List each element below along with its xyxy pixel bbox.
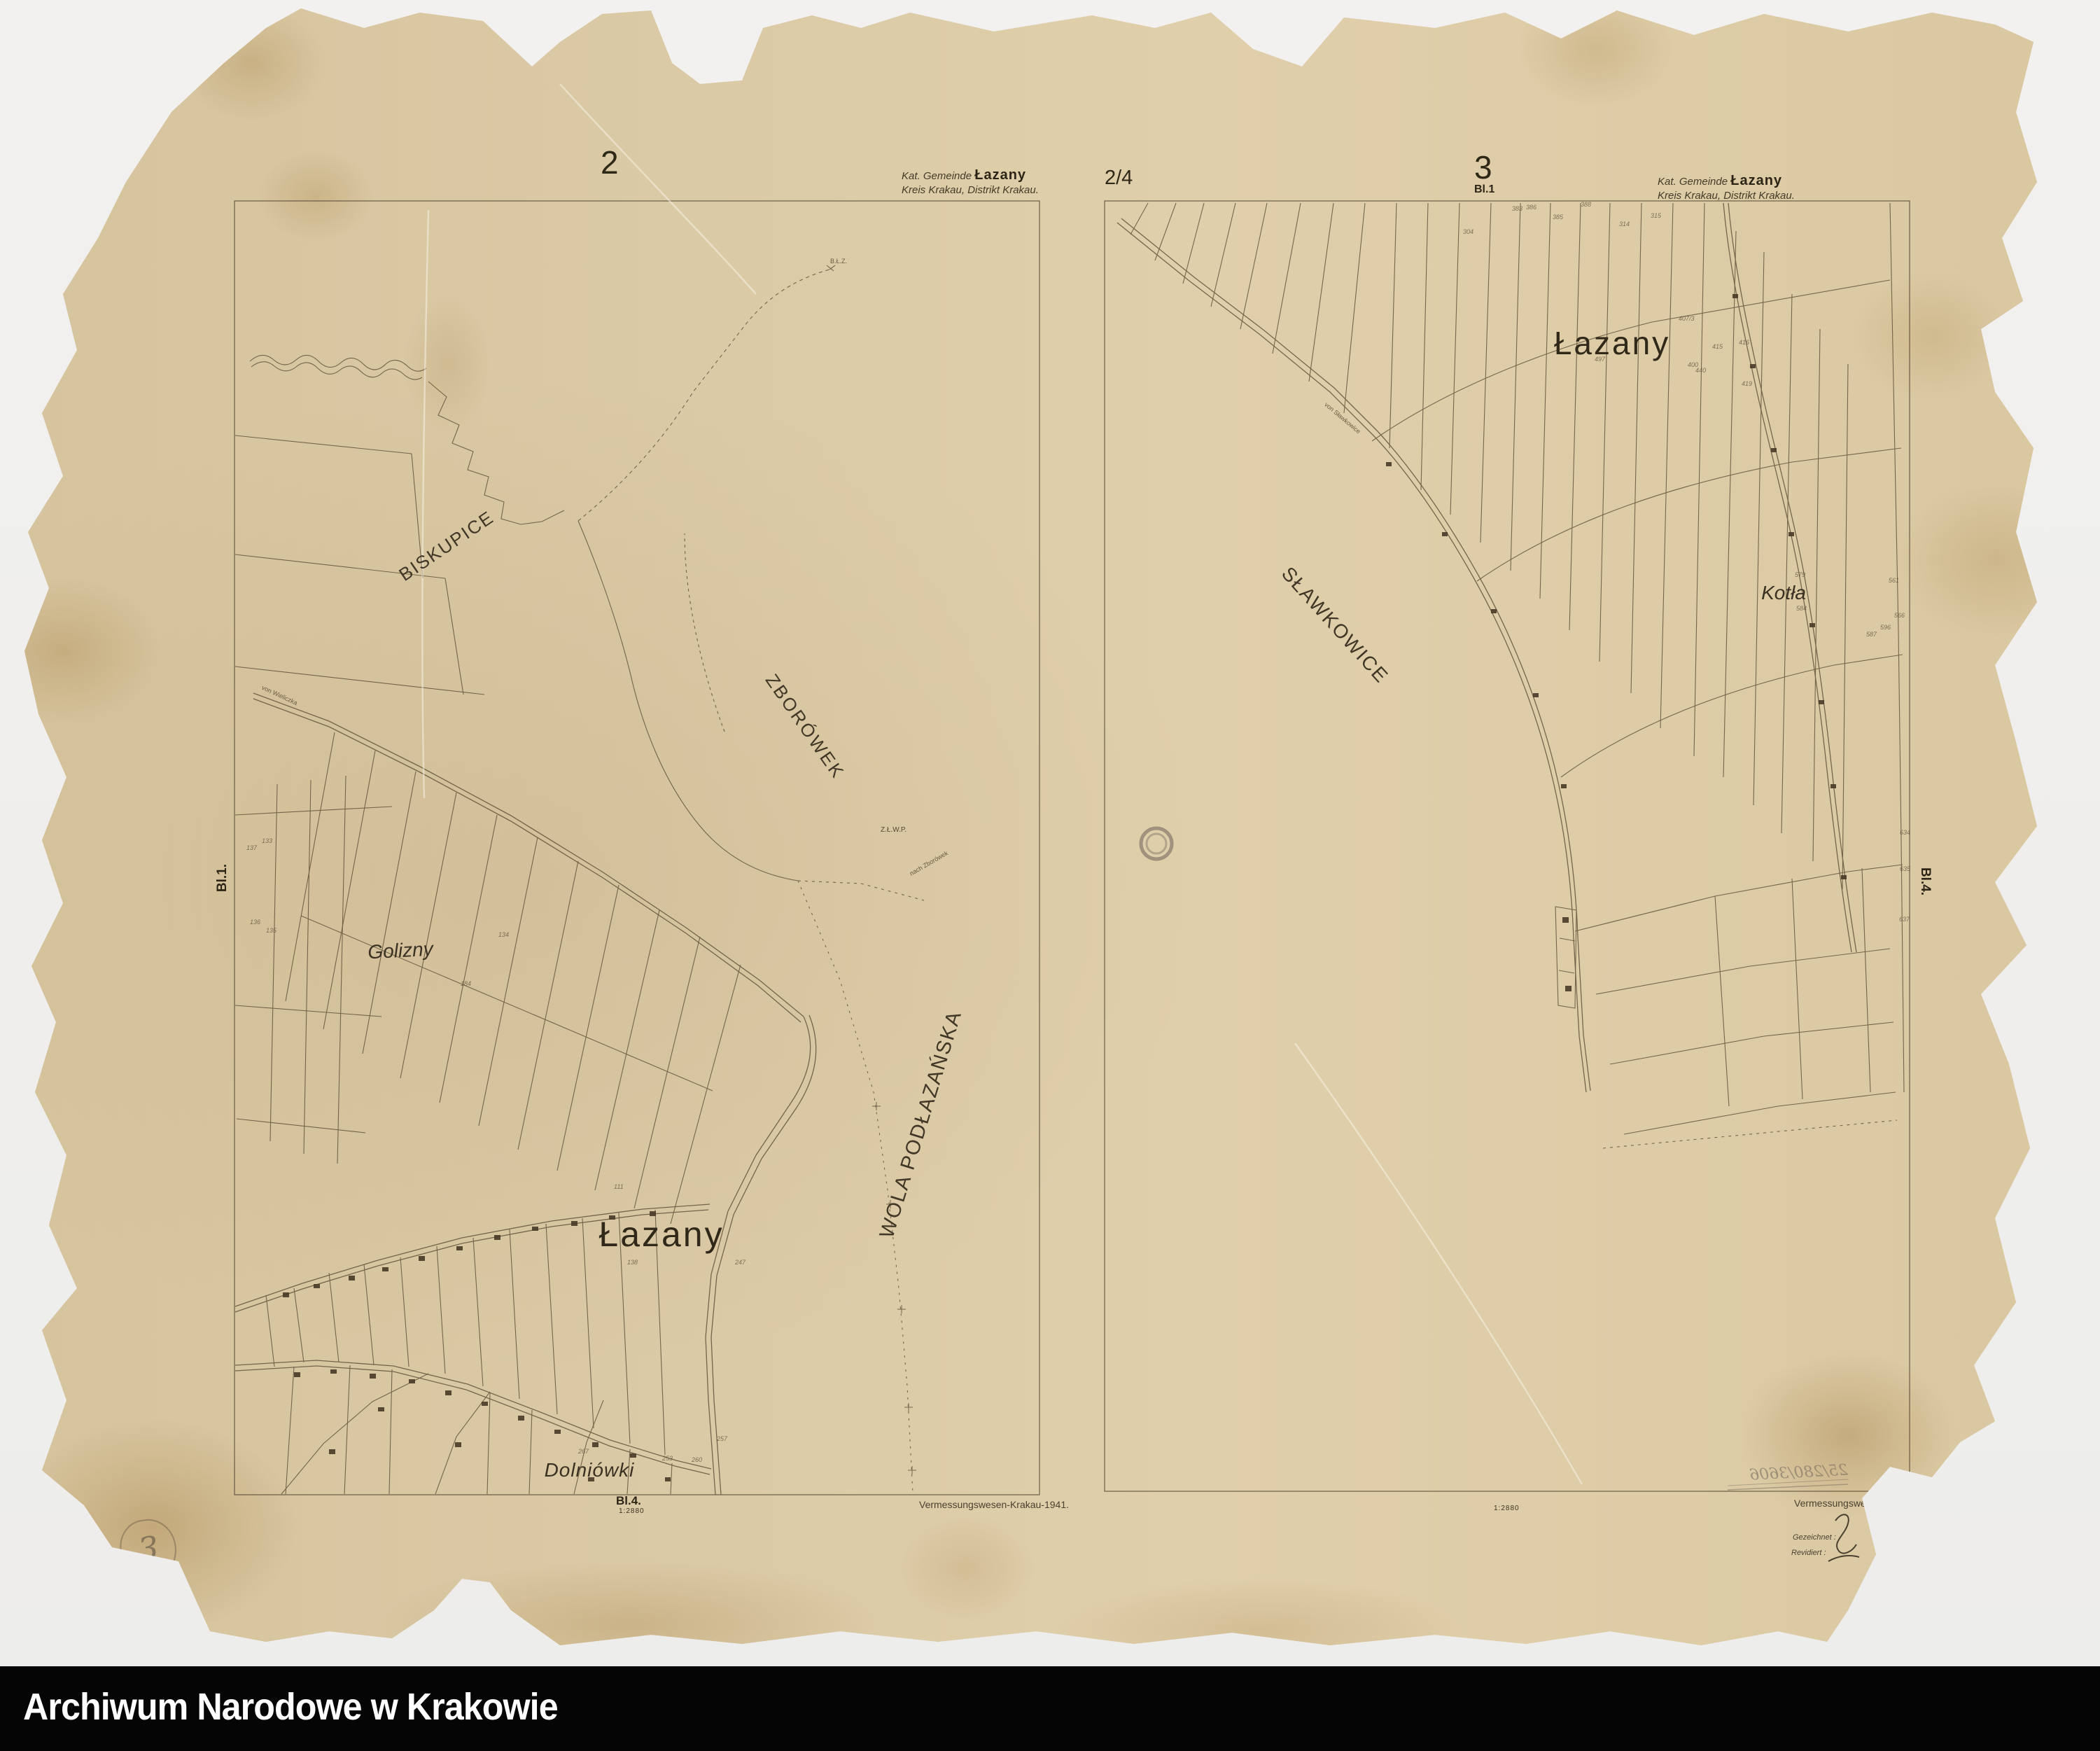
parcel-number: 566 [1894, 612, 1905, 619]
parcel-number: 635 [1900, 865, 1910, 872]
archive-name: Archiwum Narodowe w Krakowie [23, 1666, 558, 1747]
parcel-number: 561 [1889, 577, 1899, 584]
scanned-cadastral-map: 2 Kat. Gemeinde Łazany Kreis Krakau, Dis… [0, 0, 2100, 1751]
parcel-number: 579 [1795, 571, 1805, 578]
parcel-number: 407/3 [1679, 315, 1695, 322]
parcel-number: 315 [1651, 212, 1661, 219]
parcel-number: 419 [1742, 380, 1752, 387]
parcel-number: 596 [1880, 624, 1891, 631]
parcel-numbers-right: 383386385388314315304497407/340044041541… [0, 0, 2100, 1751]
parcel-number: 314 [1619, 221, 1630, 228]
parcel-number: 497 [1595, 356, 1605, 363]
parcel-number: 440 [1695, 367, 1706, 374]
parcel-number: 304 [1463, 228, 1473, 235]
parcel-number: 386 [1526, 204, 1536, 211]
paper-wrap: 2 Kat. Gemeinde Łazany Kreis Krakau, Dis… [0, 0, 2100, 1751]
parcel-number: 587 [1866, 631, 1877, 638]
parcel-number: 385 [1553, 214, 1563, 221]
parcel-number: 415 [1712, 343, 1723, 350]
parcel-number: 388 [1581, 201, 1591, 208]
parcel-number: 383 [1512, 205, 1522, 212]
parcel-number: 416 [1739, 339, 1749, 346]
archive-footer-bar: Archiwum Narodowe w Krakowie [0, 1666, 2100, 1751]
parcel-number: 634 [1900, 829, 1910, 836]
parcel-number: 584 [1796, 605, 1807, 612]
parcel-number: 637 [1899, 916, 1910, 923]
